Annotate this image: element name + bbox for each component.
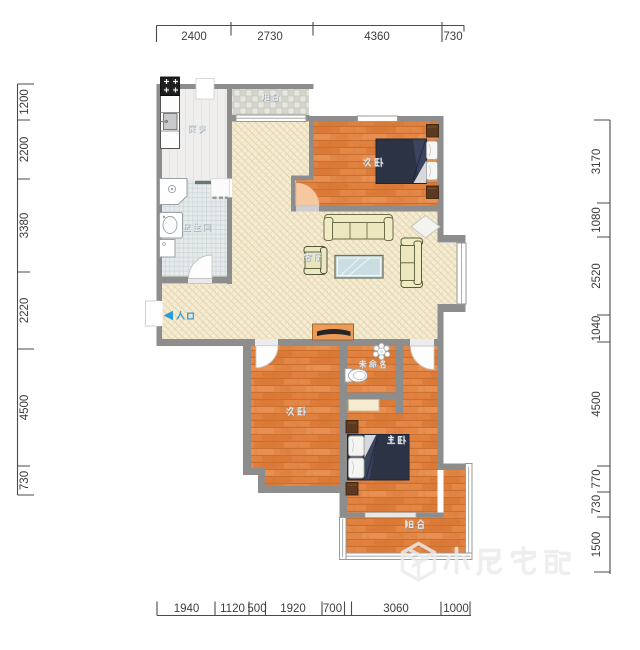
- svg-text:2200: 2200: [19, 137, 31, 163]
- svg-text:2220: 2220: [19, 298, 31, 324]
- svg-text:3060: 3060: [383, 603, 409, 615]
- svg-text:4500: 4500: [19, 395, 31, 421]
- svg-text:730: 730: [443, 31, 462, 43]
- svg-text:3170: 3170: [591, 149, 603, 175]
- svg-text:1940: 1940: [174, 603, 200, 615]
- svg-text:730: 730: [19, 471, 31, 490]
- svg-text:2400: 2400: [181, 31, 207, 43]
- svg-text:1000: 1000: [443, 603, 469, 615]
- svg-text:1040: 1040: [591, 316, 603, 342]
- svg-text:1080: 1080: [591, 207, 603, 233]
- svg-text:2520: 2520: [591, 263, 603, 289]
- svg-text:700: 700: [323, 603, 342, 615]
- svg-text:770: 770: [591, 469, 603, 488]
- svg-text:1920: 1920: [280, 603, 306, 615]
- svg-text:730: 730: [591, 495, 603, 514]
- svg-text:1120: 1120: [220, 603, 245, 615]
- svg-text:500: 500: [247, 603, 266, 615]
- svg-text:1500: 1500: [591, 532, 603, 558]
- svg-text:3380: 3380: [19, 213, 31, 239]
- svg-text:2730: 2730: [257, 31, 283, 43]
- svg-text:4360: 4360: [364, 31, 390, 43]
- svg-text:1200: 1200: [19, 89, 31, 115]
- svg-text:4500: 4500: [591, 391, 603, 417]
